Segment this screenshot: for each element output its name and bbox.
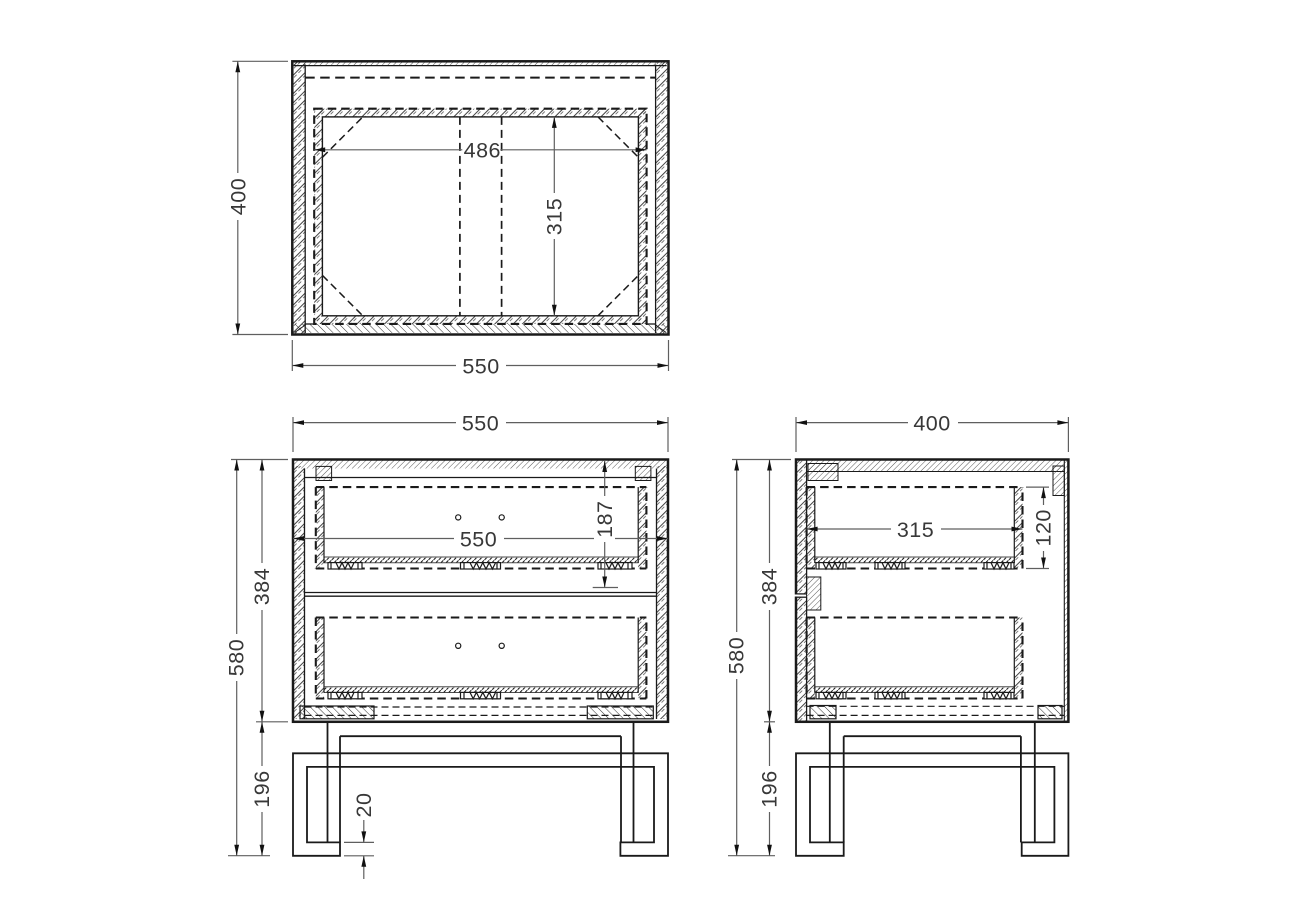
svg-text:580: 580 [725, 637, 749, 674]
svg-text:20: 20 [352, 793, 376, 818]
svg-text:384: 384 [758, 568, 782, 605]
svg-text:187: 187 [593, 501, 617, 538]
svg-text:315: 315 [897, 518, 934, 542]
svg-text:196: 196 [758, 770, 782, 807]
svg-text:486: 486 [464, 139, 501, 163]
svg-text:120: 120 [1032, 509, 1056, 546]
svg-text:400: 400 [227, 178, 251, 215]
svg-text:550: 550 [462, 355, 499, 379]
svg-text:550: 550 [460, 528, 497, 552]
svg-text:384: 384 [250, 568, 274, 605]
svg-text:550: 550 [462, 412, 499, 436]
svg-text:400: 400 [913, 412, 950, 436]
svg-text:580: 580 [225, 639, 249, 676]
svg-text:315: 315 [543, 198, 567, 235]
svg-text:196: 196 [250, 770, 274, 807]
